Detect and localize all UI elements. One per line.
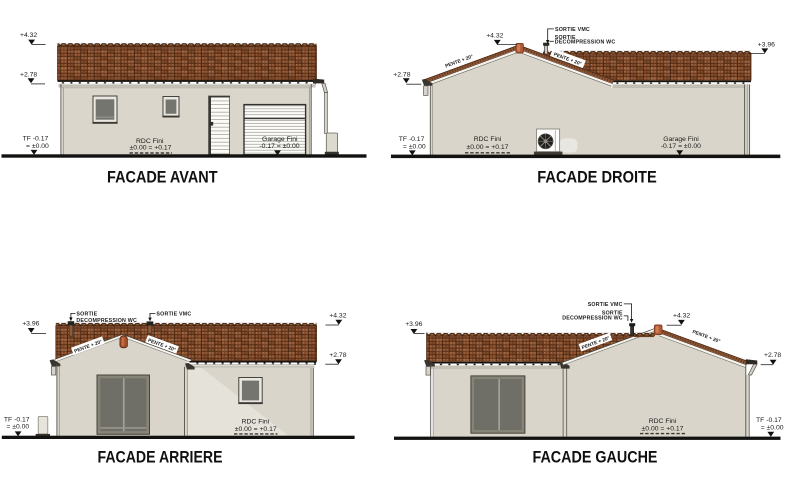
svg-text:= ±0.00: = ±0.00	[6, 423, 29, 430]
svg-text:±0.00 = +0.17: ±0.00 = +0.17	[642, 425, 684, 432]
svg-text:FACADE AVANT: FACADE AVANT	[107, 167, 218, 186]
svg-text:+3.96: +3.96	[22, 321, 39, 328]
svg-text:DECOMPRESSION WC: DECOMPRESSION WC	[76, 318, 137, 324]
svg-text:= ±0.00: = ±0.00	[26, 143, 49, 150]
svg-text:+2.78: +2.78	[393, 72, 410, 79]
svg-text:+2.78: +2.78	[329, 352, 346, 359]
svg-text:FACADE ARRIERE: FACADE ARRIERE	[98, 447, 223, 466]
svg-text:+4.32: +4.32	[486, 33, 503, 40]
svg-text:FACADE DROITE: FACADE DROITE	[537, 167, 657, 186]
svg-text:±0.00 = +0.17: ±0.00 = +0.17	[130, 145, 172, 152]
svg-text:+3.96: +3.96	[758, 41, 775, 48]
svg-text:±0.00 = +0.17: ±0.00 = +0.17	[467, 144, 509, 151]
svg-text:+2.78: +2.78	[764, 352, 781, 359]
svg-text:FACADE GAUCHE: FACADE GAUCHE	[533, 447, 658, 466]
svg-text:SORTIE VMC: SORTIE VMC	[588, 302, 623, 308]
svg-text:+4.32: +4.32	[329, 312, 346, 319]
svg-text:DECOMPRESSION WC: DECOMPRESSION WC	[562, 316, 623, 322]
svg-text:TF -0.17: TF -0.17	[399, 136, 425, 143]
svg-text:TF -0.17: TF -0.17	[23, 136, 49, 143]
svg-text:RDC Fini: RDC Fini	[649, 418, 677, 425]
svg-text:TF -0.17: TF -0.17	[756, 417, 782, 424]
svg-text:SORTIE VMC: SORTIE VMC	[156, 311, 191, 317]
svg-text:= ±0.00: = ±0.00	[761, 425, 784, 432]
svg-text:SORTIE: SORTIE	[76, 311, 97, 317]
svg-text:RDC Fini: RDC Fini	[474, 136, 502, 143]
svg-text:+4.32: +4.32	[673, 312, 690, 319]
svg-text:+2.78: +2.78	[20, 71, 37, 78]
svg-text:+4.32: +4.32	[20, 32, 37, 39]
svg-text:RDC Fini: RDC Fini	[242, 419, 270, 426]
svg-text:-0.17 = ±0.00: -0.17 = ±0.00	[661, 143, 701, 150]
svg-text:Garage Fini: Garage Fini	[262, 136, 298, 143]
svg-text:= ±0.00: = ±0.00	[403, 143, 426, 150]
svg-text:SORTIE VMC: SORTIE VMC	[555, 27, 590, 33]
svg-text:DECOMPRESSION WC: DECOMPRESSION WC	[555, 40, 616, 46]
svg-text:Garage Fini: Garage Fini	[663, 136, 699, 143]
svg-text:-0.17 = ±0.00: -0.17 = ±0.00	[259, 143, 299, 150]
svg-text:+3.96: +3.96	[405, 321, 422, 328]
svg-text:±0.00 = +0.17: ±0.00 = +0.17	[235, 426, 277, 433]
